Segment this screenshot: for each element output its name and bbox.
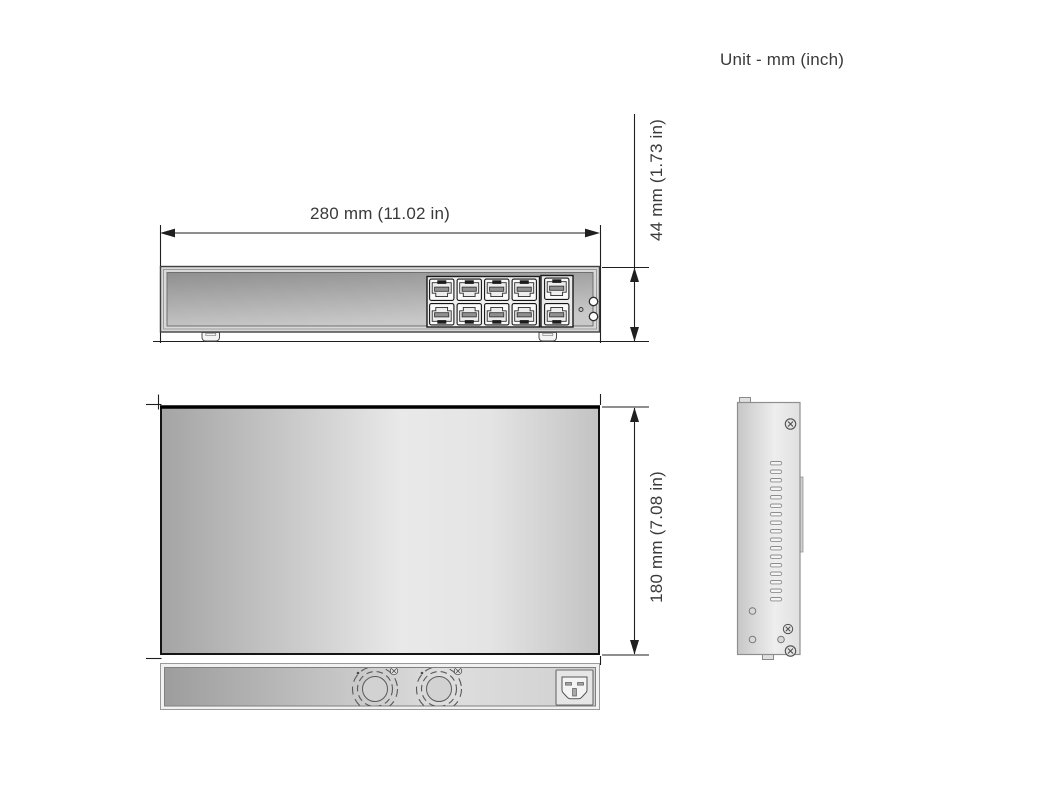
top-view xyxy=(160,407,600,654)
width-dimension-label: 280 mm (11.02 in) xyxy=(160,204,600,224)
top-cover xyxy=(161,407,599,654)
rj45-port-icon xyxy=(512,304,536,325)
screw-icon xyxy=(783,624,792,633)
rj45-port-icon xyxy=(457,279,481,300)
side-view xyxy=(738,398,804,660)
arrowhead-left xyxy=(160,229,175,238)
arrowhead-down xyxy=(630,640,639,655)
rj45-port-icon xyxy=(485,304,509,325)
power-inlet-icon xyxy=(556,670,593,705)
arrowhead-down xyxy=(630,327,639,342)
foot-right xyxy=(539,333,557,342)
rear-view xyxy=(161,664,600,716)
hole-icon xyxy=(749,608,756,615)
depth-dimension-label: 180 mm (7.08 in) xyxy=(647,471,667,603)
screw-icon xyxy=(785,419,795,429)
arrowhead-right xyxy=(585,229,600,238)
dimension-diagram: Unit - mm (inch) 280 mm (11.02 in) 44 mm… xyxy=(0,0,1056,805)
ethernet-port-block xyxy=(427,277,540,328)
led-icon xyxy=(589,312,597,320)
diagram-linework xyxy=(0,0,1056,805)
front-view xyxy=(161,267,600,342)
rj45-port-icon xyxy=(545,304,569,325)
rj45-port-icon xyxy=(430,304,454,325)
foot-left xyxy=(202,333,220,342)
height-dimension-label: 44 mm (1.73 in) xyxy=(647,119,667,241)
uplink-port-block xyxy=(541,276,573,328)
hole-icon xyxy=(749,636,756,643)
unit-note: Unit - mm (inch) xyxy=(720,50,844,70)
rj45-port-icon xyxy=(485,279,509,300)
hole-icon xyxy=(778,636,785,643)
rj45-port-icon xyxy=(430,279,454,300)
arrowhead-up xyxy=(630,268,639,283)
side-panel xyxy=(738,403,801,655)
rj45-port-icon xyxy=(512,279,536,300)
screw-icon xyxy=(454,667,461,674)
screw-icon xyxy=(390,667,397,674)
arrowhead-up xyxy=(630,408,639,423)
rj45-port-icon xyxy=(545,278,569,299)
screw-icon xyxy=(785,646,795,656)
led-icon xyxy=(589,297,597,305)
rj45-port-icon xyxy=(457,304,481,325)
